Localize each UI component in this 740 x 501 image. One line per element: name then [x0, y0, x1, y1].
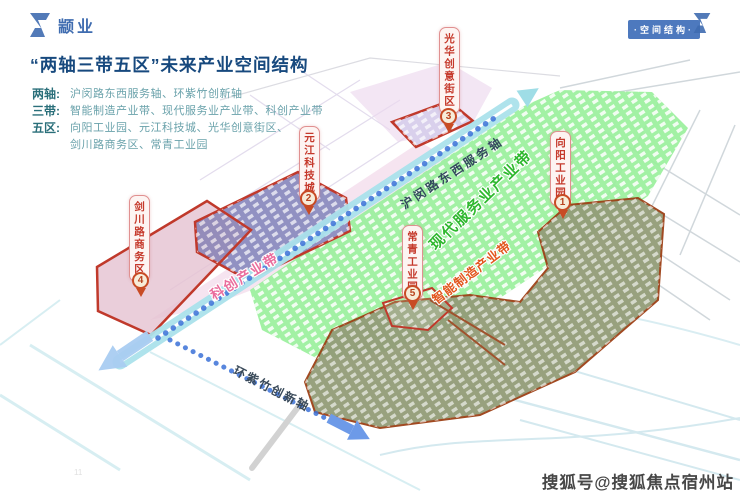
district-pill-guanghua: 光华创意街区 [439, 27, 460, 114]
gray-road-stub [252, 402, 302, 468]
district-marker-number: 1 [554, 194, 571, 211]
legend-value: 智能制造产业带、现代服务业产业带、科创产业带 [70, 103, 323, 120]
legend-value: 沪闵路东西服务轴、环紫竹创新轴 [70, 86, 243, 103]
legend-row-axes: 两轴: 沪闵路东西服务轴、环紫竹创新轴 [32, 86, 323, 103]
legend-key: 三带: [32, 103, 70, 120]
pin-tail-icon [444, 124, 454, 133]
district-marker-number: 4 [132, 272, 149, 289]
district-marker-4: 4 [132, 272, 149, 297]
legend-key: 五区: [32, 120, 70, 154]
watermark: 搜狐号@搜狐焦点宿州站 [542, 469, 734, 493]
road-arrow-bottomleft [91, 325, 157, 381]
district-marker-number: 3 [440, 108, 457, 125]
corner-badge: ·空间结构· [628, 20, 700, 39]
page: 颛业 ·空间结构· “两轴三带五区”未来产业空间结构 两轴: 沪闵路东西服务轴、… [0, 0, 740, 501]
page-title: “两轴三带五区”未来产业空间结构 [30, 52, 309, 77]
district-marker-2: 2 [300, 190, 317, 215]
pin-tail-icon [304, 206, 314, 215]
legend-row-belts: 三带: 智能制造产业带、现代服务业产业带、科创产业带 [32, 103, 323, 120]
legend-key: 两轴: [32, 86, 70, 103]
pin-tail-icon [136, 288, 146, 297]
district-pill-jianchuan: 剑川路商务区 [129, 195, 150, 282]
page-number: 11 [74, 468, 82, 477]
legend-value-line1: 向阳工业园、元江科技城、光华创意街区、 [70, 122, 289, 134]
pin-tail-icon [408, 301, 418, 310]
district-marker-number: 5 [404, 285, 421, 302]
district-marker-5: 5 [404, 285, 421, 310]
district-marker-1: 1 [554, 194, 571, 219]
pin-tail-icon [558, 210, 568, 219]
corner-emblem-icon [692, 11, 712, 40]
legend-value-line2: 剑川路商务区、常青工业园 [70, 139, 208, 151]
legend: 两轴: 沪闵路东西服务轴、环紫竹创新轴 三带: 智能制造产业带、现代服务业产业带… [32, 86, 323, 154]
brand-logo-text: 颛业 [58, 13, 96, 37]
brand-logo: 颛业 [28, 12, 96, 38]
legend-row-zones: 五区: 向阳工业园、元江科技城、光华创意街区、 剑川路商务区、常青工业园 [32, 120, 323, 154]
legend-value: 向阳工业园、元江科技城、光华创意街区、 剑川路商务区、常青工业园 [70, 120, 289, 154]
brand-emblem-icon [28, 12, 52, 38]
district-marker-3: 3 [440, 108, 457, 133]
district-marker-number: 2 [300, 190, 317, 207]
